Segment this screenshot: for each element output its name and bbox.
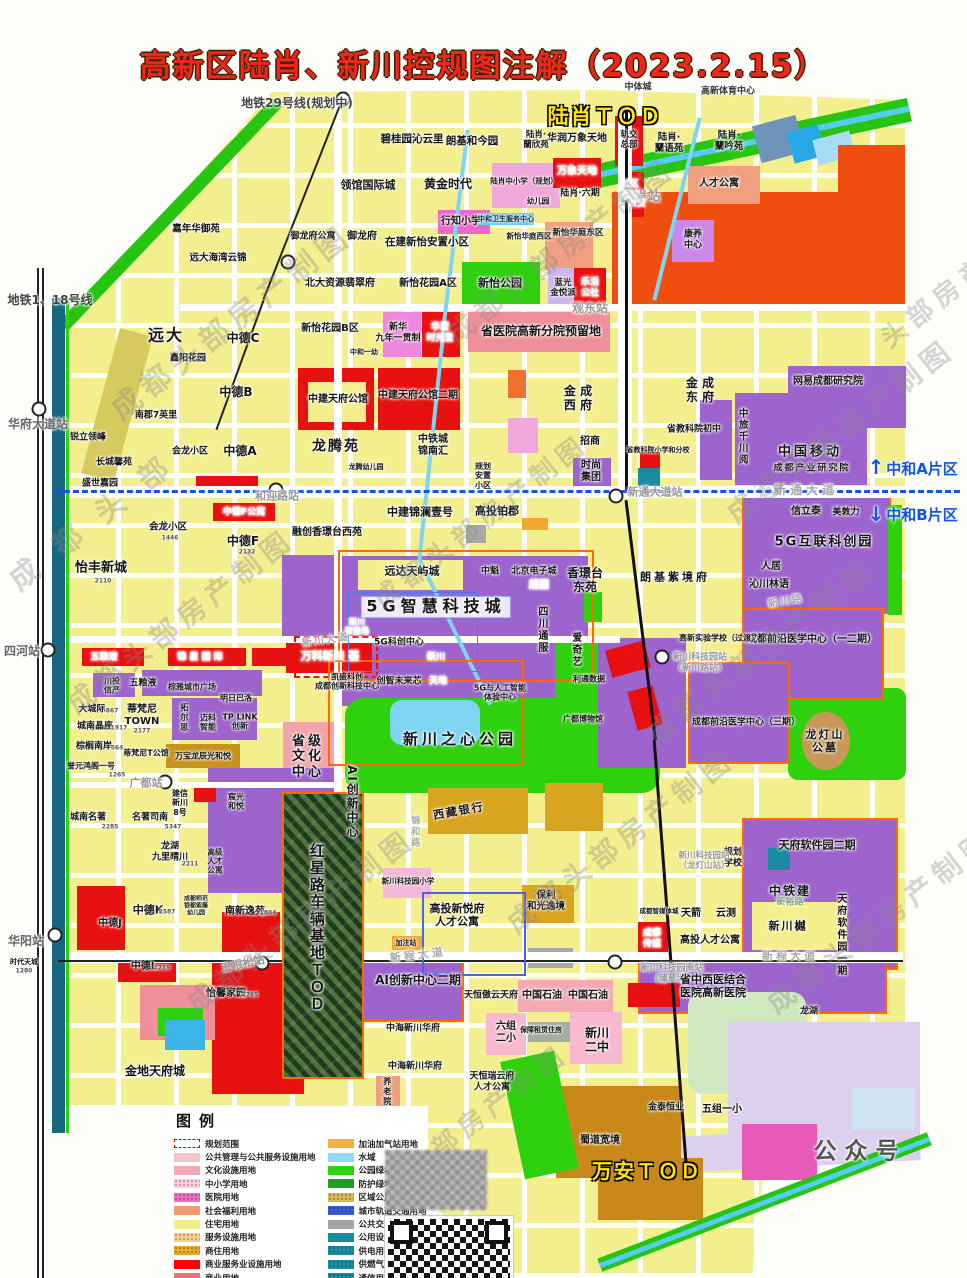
map-line — [180, 304, 905, 311]
map-region — [142, 670, 262, 696]
legend-swatch — [328, 1139, 354, 1148]
legend-label: 住宅用地 — [205, 1218, 239, 1230]
legend-swatch — [174, 1179, 200, 1188]
map-region — [545, 222, 593, 270]
metro-station-marker — [608, 955, 623, 970]
metro-station-marker — [158, 775, 173, 790]
qr-code — [385, 1216, 513, 1278]
map-region — [392, 936, 422, 950]
legend-label: 商业服务业设施用地 — [205, 1258, 282, 1270]
metro-station-marker — [41, 643, 56, 658]
zoning-map: 地铁29号线(规划中)中体城高新体育中心陆肖ＴＯＤ陆肖站轨交 总部陆肖· 蘭语苑… — [0, 0, 967, 1278]
legend-label: 医院用地 — [205, 1191, 239, 1203]
district-boundary-dashed-line — [55, 490, 960, 493]
map-label: 时代天城 — [10, 958, 38, 966]
plan-boundary — [328, 660, 524, 766]
map-region — [565, 980, 613, 1012]
legend-item: 社会福利用地 — [174, 1204, 316, 1217]
map-region — [213, 503, 275, 521]
satellite-inset-hongxinglu-depot — [282, 792, 364, 1079]
legend-swatch — [328, 1193, 354, 1202]
page-title: 高新区陆肖、新川控规图注解（2023.2.15） — [140, 40, 828, 85]
map-region — [573, 458, 611, 488]
map-region — [638, 922, 668, 952]
metro-station-marker — [609, 489, 624, 504]
map-region — [672, 220, 714, 262]
legend-swatch — [174, 1139, 200, 1148]
map-label: 四河站 — [4, 644, 40, 658]
map-region — [466, 525, 486, 543]
legend-swatch — [328, 1273, 354, 1278]
legend-item: 商住用地 — [174, 1244, 316, 1257]
legend-label: 社会福利用地 — [205, 1205, 256, 1217]
legend-item: 住宅用地 — [174, 1217, 316, 1230]
map-region — [168, 648, 246, 666]
legend-item: 商业用地 — [174, 1271, 316, 1278]
metro-station-marker — [281, 255, 296, 270]
legend-swatch — [174, 1273, 200, 1278]
legend-label: 服务设施用地 — [205, 1231, 256, 1243]
legend-item: 加油加气站用地 — [328, 1137, 427, 1150]
metro-station-marker — [655, 650, 670, 665]
legend-label: 水域 — [359, 1151, 376, 1163]
legend-swatch — [328, 1166, 354, 1175]
map-region — [888, 505, 902, 615]
map-region — [462, 262, 540, 304]
legend-title: 图例 — [176, 1110, 428, 1131]
map-region — [852, 1088, 914, 1130]
legend-label: 加油加气站用地 — [359, 1138, 419, 1150]
map-region — [194, 788, 216, 802]
map-region — [548, 268, 574, 306]
map-region — [688, 662, 790, 764]
map-line — [66, 298, 69, 1133]
legend-label: 规划范围 — [205, 1138, 239, 1150]
map-region — [838, 145, 905, 193]
legend-swatch — [328, 1260, 354, 1269]
map-region — [528, 1022, 576, 1042]
map-region — [640, 452, 660, 468]
map-region — [545, 783, 603, 831]
legend-swatch — [174, 1260, 200, 1269]
map-region — [688, 166, 760, 204]
map-region — [768, 848, 790, 870]
map-region — [742, 495, 891, 614]
legend-label: 商业用地 — [205, 1272, 239, 1278]
legend-swatch — [174, 1153, 200, 1162]
map-line — [625, 108, 628, 490]
map-region — [165, 1020, 205, 1050]
metro-station-marker — [255, 956, 270, 971]
map-region — [522, 518, 548, 530]
map-region — [508, 370, 526, 398]
map-line — [42, 268, 44, 1278]
legend-column-1: 规划范围公共管理与公共服务设施用地文化设施用地中小学用地医院用地社会福利用地住宅… — [174, 1137, 316, 1278]
planning-map-page: 高新区陆肖、新川控规图注解（2023.2.15） 地铁29号线(规划中)中体城高… — [0, 0, 967, 1278]
legend-label: 商住用地 — [205, 1245, 239, 1257]
map-region — [222, 912, 280, 952]
map-region — [82, 648, 144, 666]
map-region — [570, 1012, 622, 1064]
legend-item: 公共管理与公共服务设施用地 — [174, 1150, 316, 1163]
map-region — [522, 885, 574, 923]
plan-boundary — [348, 592, 478, 672]
legend-swatch — [328, 1153, 354, 1162]
legend-swatch — [174, 1233, 200, 1242]
map-region — [378, 368, 460, 430]
map-region — [700, 400, 732, 480]
map-region — [376, 1076, 400, 1110]
legend-label: 文化设施用地 — [205, 1164, 256, 1176]
map-region — [508, 418, 538, 453]
map-region — [172, 698, 257, 740]
legend-swatch — [174, 1166, 200, 1175]
metro-station-marker — [269, 483, 284, 498]
map-line — [37, 268, 39, 1278]
map-region — [752, 902, 847, 950]
map-label: 1280 — [16, 967, 33, 974]
map-region — [553, 158, 601, 188]
legend-swatch — [328, 1179, 354, 1188]
map-line — [60, 782, 340, 788]
legend-label: 公共管理与公共服务设施用地 — [205, 1151, 316, 1163]
map-region — [282, 555, 337, 640]
map-region — [383, 312, 421, 357]
legend-swatch — [174, 1246, 200, 1255]
map-region — [735, 393, 867, 485]
map-region — [574, 268, 606, 306]
metro-station-marker — [32, 402, 47, 417]
metro-station-marker — [48, 928, 63, 943]
legend-swatch — [174, 1206, 200, 1215]
map-line — [52, 298, 65, 1133]
map-region — [93, 673, 135, 697]
map-region — [478, 213, 534, 225]
legend-item: 文化设施用地 — [174, 1164, 316, 1177]
map-region — [492, 163, 560, 208]
legend-item: 医院用地 — [174, 1191, 316, 1204]
legend-swatch — [174, 1220, 200, 1229]
legend-item: 中小学用地 — [174, 1177, 316, 1190]
legend-swatch — [328, 1206, 354, 1215]
legend-item: 商业服务业设施用地 — [174, 1258, 316, 1271]
legend-swatch — [174, 1193, 200, 1202]
legend-swatch — [328, 1220, 354, 1229]
plan-boundary — [422, 892, 526, 976]
legend-swatch — [328, 1246, 354, 1255]
legend-item: 规划范围 — [174, 1137, 316, 1150]
map-region — [742, 1124, 817, 1180]
legend-label: 中小学用地 — [205, 1178, 248, 1190]
legend-item: 服务设施用地 — [174, 1231, 316, 1244]
legend-swatch — [328, 1233, 354, 1242]
map-region — [486, 1013, 526, 1055]
metro-station-marker — [336, 92, 351, 107]
map-region — [802, 712, 850, 770]
map-region — [468, 312, 610, 352]
blurred-logo-mosaic — [385, 1150, 487, 1210]
map-region — [428, 788, 528, 834]
map-region — [518, 980, 566, 1012]
map-region — [166, 744, 240, 768]
map-region — [77, 886, 125, 950]
metro-station-marker — [621, 188, 636, 203]
